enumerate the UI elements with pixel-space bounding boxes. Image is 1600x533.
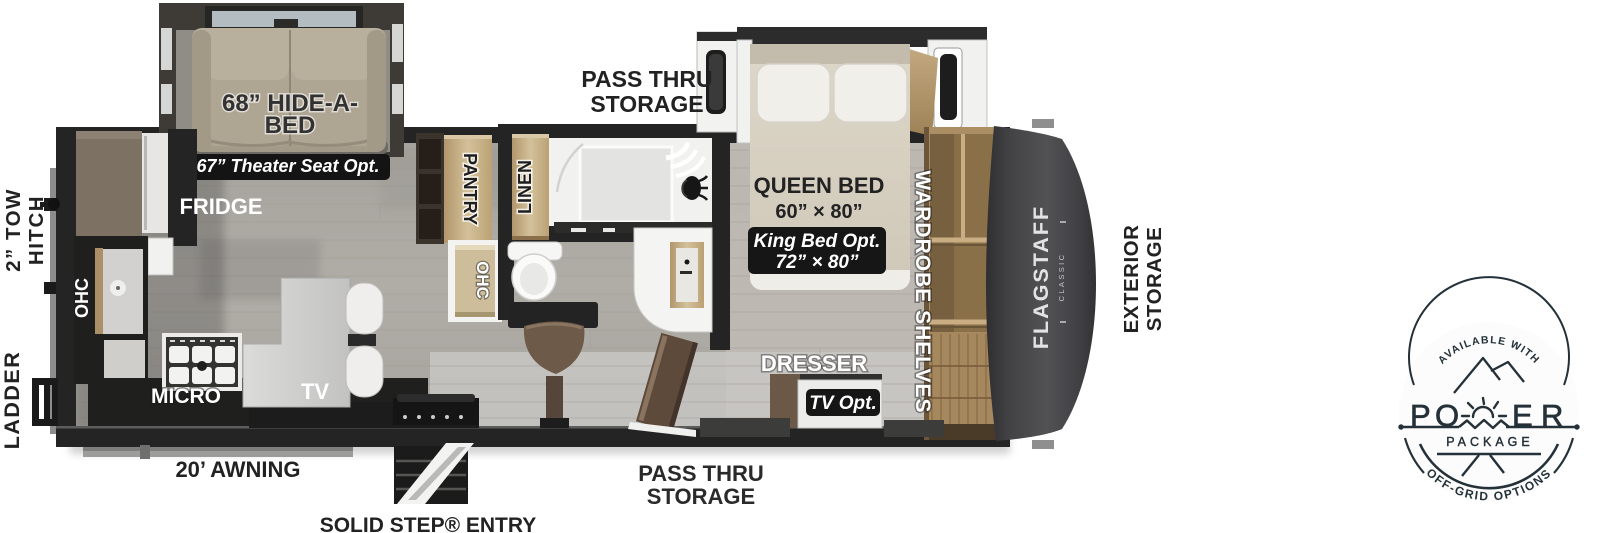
svg-text:2” TOW: 2” TOW	[2, 188, 25, 272]
svg-text:MICRO: MICRO	[151, 385, 221, 408]
svg-text:HITCH: HITCH	[25, 195, 48, 265]
svg-text:PACKAGE: PACKAGE	[1446, 435, 1534, 449]
svg-text:STORAGE: STORAGE	[590, 91, 703, 117]
svg-text:72” × 80”: 72” × 80”	[776, 252, 859, 273]
svg-text:DRESSER: DRESSER	[761, 351, 867, 376]
svg-text:LINEN: LINEN	[515, 160, 535, 214]
svg-text:PASS THRU: PASS THRU	[638, 461, 764, 486]
svg-text:PASS THRU: PASS THRU	[581, 66, 712, 92]
svg-text:CLASSIC: CLASSIC	[1057, 253, 1066, 302]
svg-text:BED: BED	[265, 112, 316, 139]
svg-text:60” × 80”: 60” × 80”	[775, 201, 862, 223]
svg-text:PANTRY: PANTRY	[460, 153, 480, 225]
svg-text:King Bed Opt.: King Bed Opt.	[754, 231, 881, 252]
svg-text:20’ AWNING: 20’ AWNING	[175, 457, 300, 482]
svg-text:QUEEN BED: QUEEN BED	[754, 173, 885, 198]
svg-text:TV: TV	[301, 379, 329, 404]
svg-text:67” Theater Seat Opt.: 67” Theater Seat Opt.	[196, 156, 379, 176]
svg-text:STORAGE: STORAGE	[1143, 227, 1166, 332]
svg-text:EXTERIOR: EXTERIOR	[1120, 225, 1143, 334]
svg-text:WARDROBE SHELVES: WARDROBE SHELVES	[911, 170, 934, 413]
svg-text:LADDER: LADDER	[0, 351, 24, 450]
svg-text:STORAGE: STORAGE	[647, 484, 755, 509]
svg-text:OHC: OHC	[72, 278, 92, 318]
svg-text:OHC: OHC	[473, 261, 492, 299]
svg-text:FLAGSTAFF: FLAGSTAFF	[1029, 205, 1053, 349]
svg-text:FRIDGE: FRIDGE	[179, 194, 262, 219]
svg-text:SOLID STEP® ENTRY: SOLID STEP® ENTRY	[320, 514, 537, 533]
svg-text:TV Opt.: TV Opt.	[809, 393, 877, 414]
